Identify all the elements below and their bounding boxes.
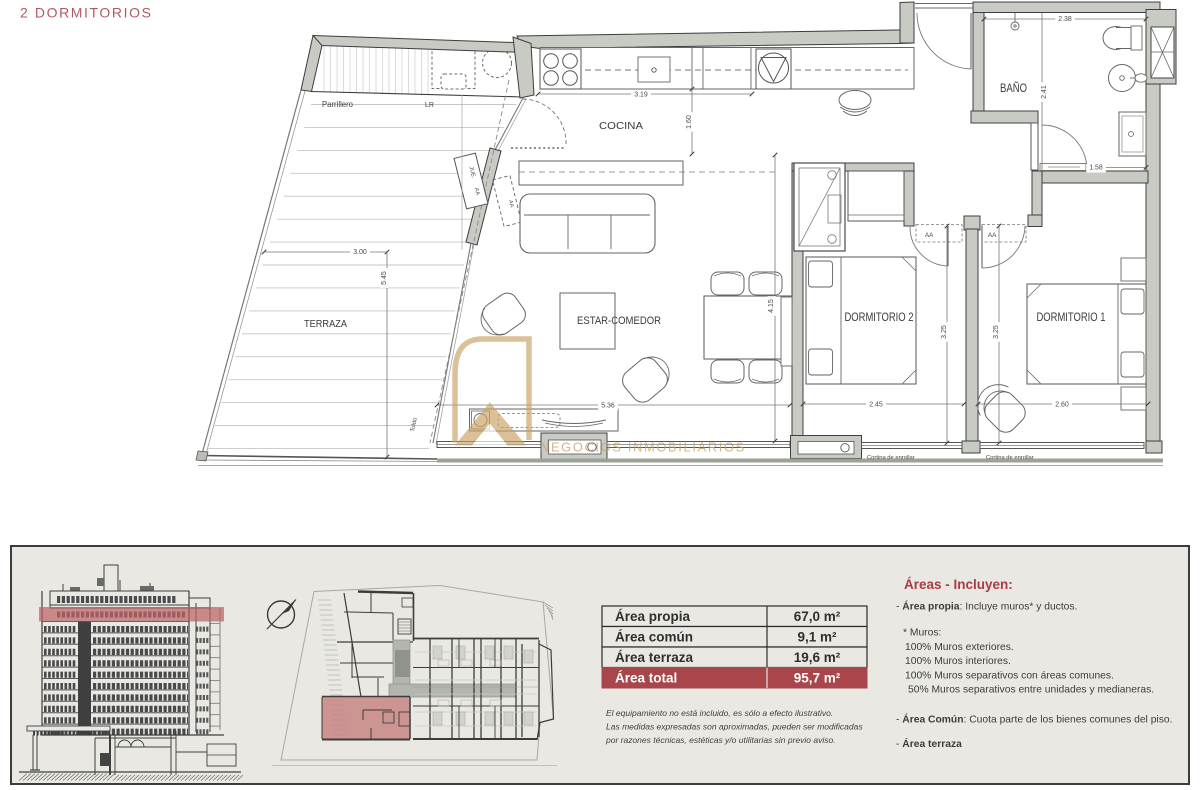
svg-text:2 DORMITORIOS: 2 DORMITORIOS: [20, 5, 153, 21]
svg-text:50% Muros separativos entre un: 50% Muros separativos entre unidades y m…: [908, 685, 1154, 696]
svg-text:El equipamiento no está inclui: El equipamiento no está incluido, es sól…: [606, 708, 833, 718]
svg-text:Área común: Área común: [615, 630, 693, 645]
svg-text:AA: AA: [925, 232, 934, 239]
svg-text:- Área propia: Incluye muros*: - Área propia: Incluye muros* y ductos.: [896, 600, 1077, 613]
svg-text:Parrillero: Parrillero: [322, 100, 354, 109]
svg-text:67,0 m²: 67,0 m²: [794, 609, 841, 624]
svg-text:3.00: 3.00: [353, 249, 367, 256]
svg-text:COCINA: COCINA: [599, 120, 643, 132]
svg-text:1.60: 1.60: [686, 115, 693, 129]
svg-text:ESTAR-COMEDOR: ESTAR-COMEDOR: [577, 315, 661, 327]
svg-text:BAÑO: BAÑO: [1000, 81, 1027, 95]
svg-text:19,6 m²: 19,6 m²: [794, 650, 841, 665]
svg-text:Áreas - Incluyen:: Áreas - Incluyen:: [904, 577, 1013, 592]
svg-text:2.60: 2.60: [1055, 402, 1069, 409]
svg-text:100% Muros interiores.: 100% Muros interiores.: [905, 656, 1011, 667]
svg-text:3.25: 3.25: [993, 325, 1000, 339]
svg-text:Cortina de enrollar: Cortina de enrollar: [986, 455, 1034, 461]
svg-text:9,1 m²: 9,1 m²: [797, 630, 837, 645]
svg-text:3.19: 3.19: [634, 92, 648, 99]
svg-text:Cortina de enrollar: Cortina de enrollar: [867, 455, 915, 461]
svg-text:Las medidas expresadas son apr: Las medidas expresadas son aproximadas, …: [606, 722, 863, 732]
svg-text:NEGOCIOS INMOBILIARIOS: NEGOCIOS INMOBILIARIOS: [540, 440, 746, 455]
svg-text:Área total: Área total: [615, 671, 677, 686]
svg-text:2.41: 2.41: [1041, 85, 1048, 99]
svg-text:- Área terraza: - Área terraza: [896, 737, 962, 750]
svg-text:DORMITORIO 2: DORMITORIO 2: [845, 312, 914, 324]
svg-text:- Área Común: Cuota parte de l: - Área Común: Cuota parte de los bienes …: [896, 713, 1172, 726]
svg-text:2.38: 2.38: [1058, 16, 1072, 23]
svg-text:100% Muros exteriores.: 100% Muros exteriores.: [905, 642, 1014, 653]
svg-text:DORMITORIO 1: DORMITORIO 1: [1037, 312, 1106, 324]
svg-text:4.15: 4.15: [768, 299, 775, 313]
svg-text:* Muros:: * Muros:: [903, 628, 941, 639]
svg-text:Área propia: Área propia: [615, 609, 691, 624]
svg-text:1.58: 1.58: [1089, 165, 1103, 172]
svg-text:100% Muros separativos con áre: 100% Muros separativos con áreas comunes…: [905, 671, 1114, 682]
svg-text:3.25: 3.25: [941, 325, 948, 339]
svg-text:AA: AA: [988, 232, 997, 239]
svg-text:2.45: 2.45: [869, 402, 883, 409]
svg-text:TERRAZA: TERRAZA: [304, 318, 347, 330]
svg-text:5.36: 5.36: [601, 403, 615, 410]
svg-text:5.45: 5.45: [381, 271, 388, 285]
svg-text:LR: LR: [425, 102, 434, 109]
svg-text:por razones técnicas, estética: por razones técnicas, estéticas y/o util…: [605, 735, 836, 745]
svg-text:95,7 m²: 95,7 m²: [794, 671, 841, 686]
svg-text:Área terraza: Área terraza: [615, 650, 694, 665]
